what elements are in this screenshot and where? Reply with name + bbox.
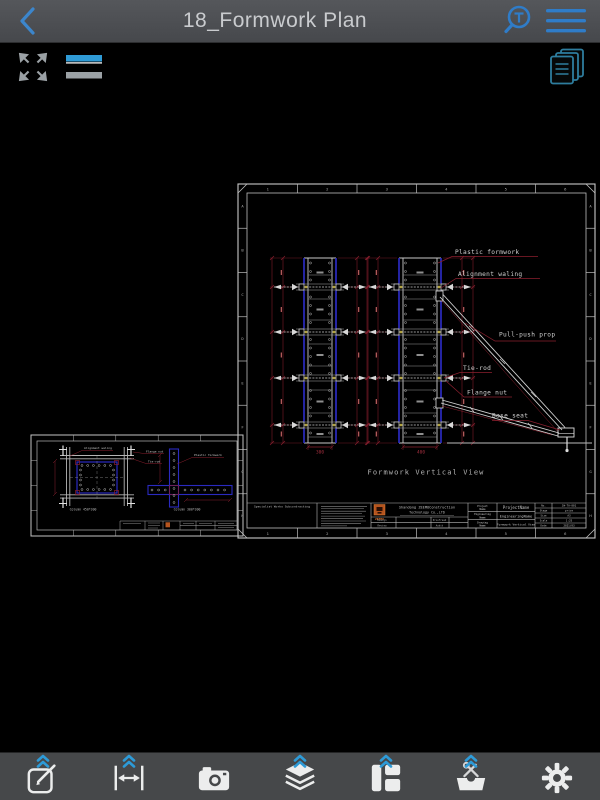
title-block: Specialist Works Subcontracting ZEEMO Sh… <box>247 503 586 528</box>
mini-title-block <box>120 521 237 530</box>
expand-chevron-icon <box>292 754 308 768</box>
meta-value: 2021/03 <box>563 524 575 528</box>
meta-label: No. <box>541 504 546 508</box>
menu-button[interactable] <box>542 0 590 42</box>
company-name-1: Shandong ZEEMOConstruction <box>399 506 455 510</box>
zone-label: 4 <box>445 531 448 536</box>
zone-label: B <box>241 248 244 253</box>
pull-push-props <box>436 291 592 452</box>
zone-label: E <box>241 380 244 385</box>
caption-column-1: Column 450*300 <box>70 508 97 512</box>
app-screen: 18_Formwork Plan <box>0 0 600 800</box>
tools-button[interactable] <box>429 753 515 800</box>
dim-col2: 400 <box>417 450 425 456</box>
line-width-button[interactable] <box>65 52 103 85</box>
text-search-icon <box>498 3 536 39</box>
detail-sheet: Alignment waling Flange nut Tie-rod Plas… <box>31 435 243 536</box>
back-button[interactable] <box>10 0 46 42</box>
subcontract-note: Specialist Works Subcontracting <box>254 505 310 509</box>
dim-col1: 300 <box>316 450 324 456</box>
zone-label: 1 <box>267 531 270 536</box>
column-assembly <box>270 256 370 445</box>
camera-icon <box>196 761 232 795</box>
expand-chevron-icon <box>378 754 394 768</box>
label-plastic-formwork: Plastic formwork <box>455 249 519 256</box>
meta-value: 1:25 <box>566 519 573 523</box>
column-assembly <box>365 256 475 445</box>
meta-label: Size <box>540 514 547 518</box>
meta-label: Stage <box>540 509 548 513</box>
sign-label: Proofread <box>433 518 447 522</box>
fit-to-screen-icon <box>17 50 49 84</box>
notes-text-lines <box>321 506 367 526</box>
zone-label: 6 <box>564 531 567 536</box>
meta-label: Scale <box>540 519 548 523</box>
field-value: EngineeringName <box>500 514 532 518</box>
label-alignment-waling: Alignment waling <box>458 271 522 278</box>
zone-label: F <box>589 425 592 430</box>
zone-labels: 112233445566AABBCCDDEEFFGGHH <box>238 184 595 538</box>
meta-value: A3 <box>567 514 571 518</box>
label-tie-rod: Tie-rod <box>463 365 491 372</box>
zone-label: 6 <box>564 187 567 192</box>
zone-label: A <box>241 203 244 208</box>
zone-label: 1 <box>267 187 270 192</box>
detail-column-plan <box>53 446 135 509</box>
views-button[interactable] <box>343 753 429 800</box>
sheets-button[interactable] <box>549 48 589 89</box>
label-flange-small: Flange nut <box>146 450 164 454</box>
caption-column-2: Column 300*300 <box>174 508 201 512</box>
zone-label: 4 <box>445 187 448 192</box>
width-dimensions: 300 400 <box>306 443 439 456</box>
view-title: Formwork Vertical View <box>368 469 485 477</box>
label-plastic-small: Plastic formwork <box>194 453 222 457</box>
label-tierod-small: Tie-rod <box>148 460 160 464</box>
formwork-columns <box>270 256 475 445</box>
zone-label: D <box>241 336 244 341</box>
meta-label: Date <box>540 524 547 528</box>
settings-button[interactable] <box>514 753 600 800</box>
zone-label: 2 <box>326 187 328 192</box>
label-waling-small: Alignment waling <box>84 446 112 450</box>
zone-label: 5 <box>505 531 507 536</box>
zone-label: 3 <box>386 187 388 192</box>
expand-chevron-icon <box>121 754 137 768</box>
expand-chevron-icon <box>463 754 479 768</box>
cad-canvas[interactable]: 112233445566AABBCCDDEEFFGGHH 300 400 <box>0 0 600 800</box>
label-base-seat: Base seat <box>492 413 528 420</box>
zone-label: E <box>589 380 592 385</box>
stacked-sheets-icon <box>549 48 589 86</box>
meta-value: price <box>565 509 573 513</box>
navbar: 18_Formwork Plan <box>0 0 600 43</box>
zone-label: G <box>589 469 592 474</box>
zone-label: H <box>589 513 592 518</box>
zone-label: C <box>241 292 243 297</box>
page-title: 18_Formwork Plan <box>60 0 490 42</box>
sign-label: Review <box>377 523 387 527</box>
annotate-button[interactable] <box>0 753 86 800</box>
field-label: Name <box>479 524 486 528</box>
label-pull-push-prop: Pull-push prop <box>499 332 555 339</box>
zone-label: 5 <box>505 187 507 192</box>
fit-screen-button[interactable] <box>17 50 49 87</box>
zone-label: D <box>589 336 592 341</box>
sign-label: Audit <box>436 523 444 527</box>
back-chevron-icon <box>16 6 40 36</box>
field-label: Name <box>479 515 486 519</box>
line-thickness-icon <box>65 52 103 82</box>
field-value: ProjectName <box>503 505 530 510</box>
field-label: Name <box>479 507 486 511</box>
find-text-button[interactable] <box>496 0 538 42</box>
zone-label: C <box>589 292 591 297</box>
zone-label: B <box>589 248 592 253</box>
zone-label: F <box>241 425 244 430</box>
gear-icon <box>540 761 574 795</box>
company-name-2: Technology Co.,LTD <box>409 510 445 514</box>
hamburger-menu-icon <box>545 7 587 35</box>
zone-label: A <box>589 203 592 208</box>
zone-label: 3 <box>386 531 388 536</box>
zone-label: 2 <box>326 531 328 536</box>
label-flange-nut: Flange nut <box>467 390 507 397</box>
camera-button[interactable] <box>171 753 257 800</box>
layers-button[interactable] <box>257 753 343 800</box>
main-sheet <box>238 184 595 538</box>
meta-value: JW-TA-001 <box>562 504 577 508</box>
measure-button[interactable] <box>86 753 172 800</box>
expand-chevron-icon <box>35 754 51 768</box>
field-value: Formwork Vertical View <box>497 523 536 527</box>
annotations: Plastic formwork Alignment waling Pull-p… <box>438 249 560 430</box>
sign-label: Design <box>377 518 387 522</box>
footer-toolbar <box>0 752 600 800</box>
